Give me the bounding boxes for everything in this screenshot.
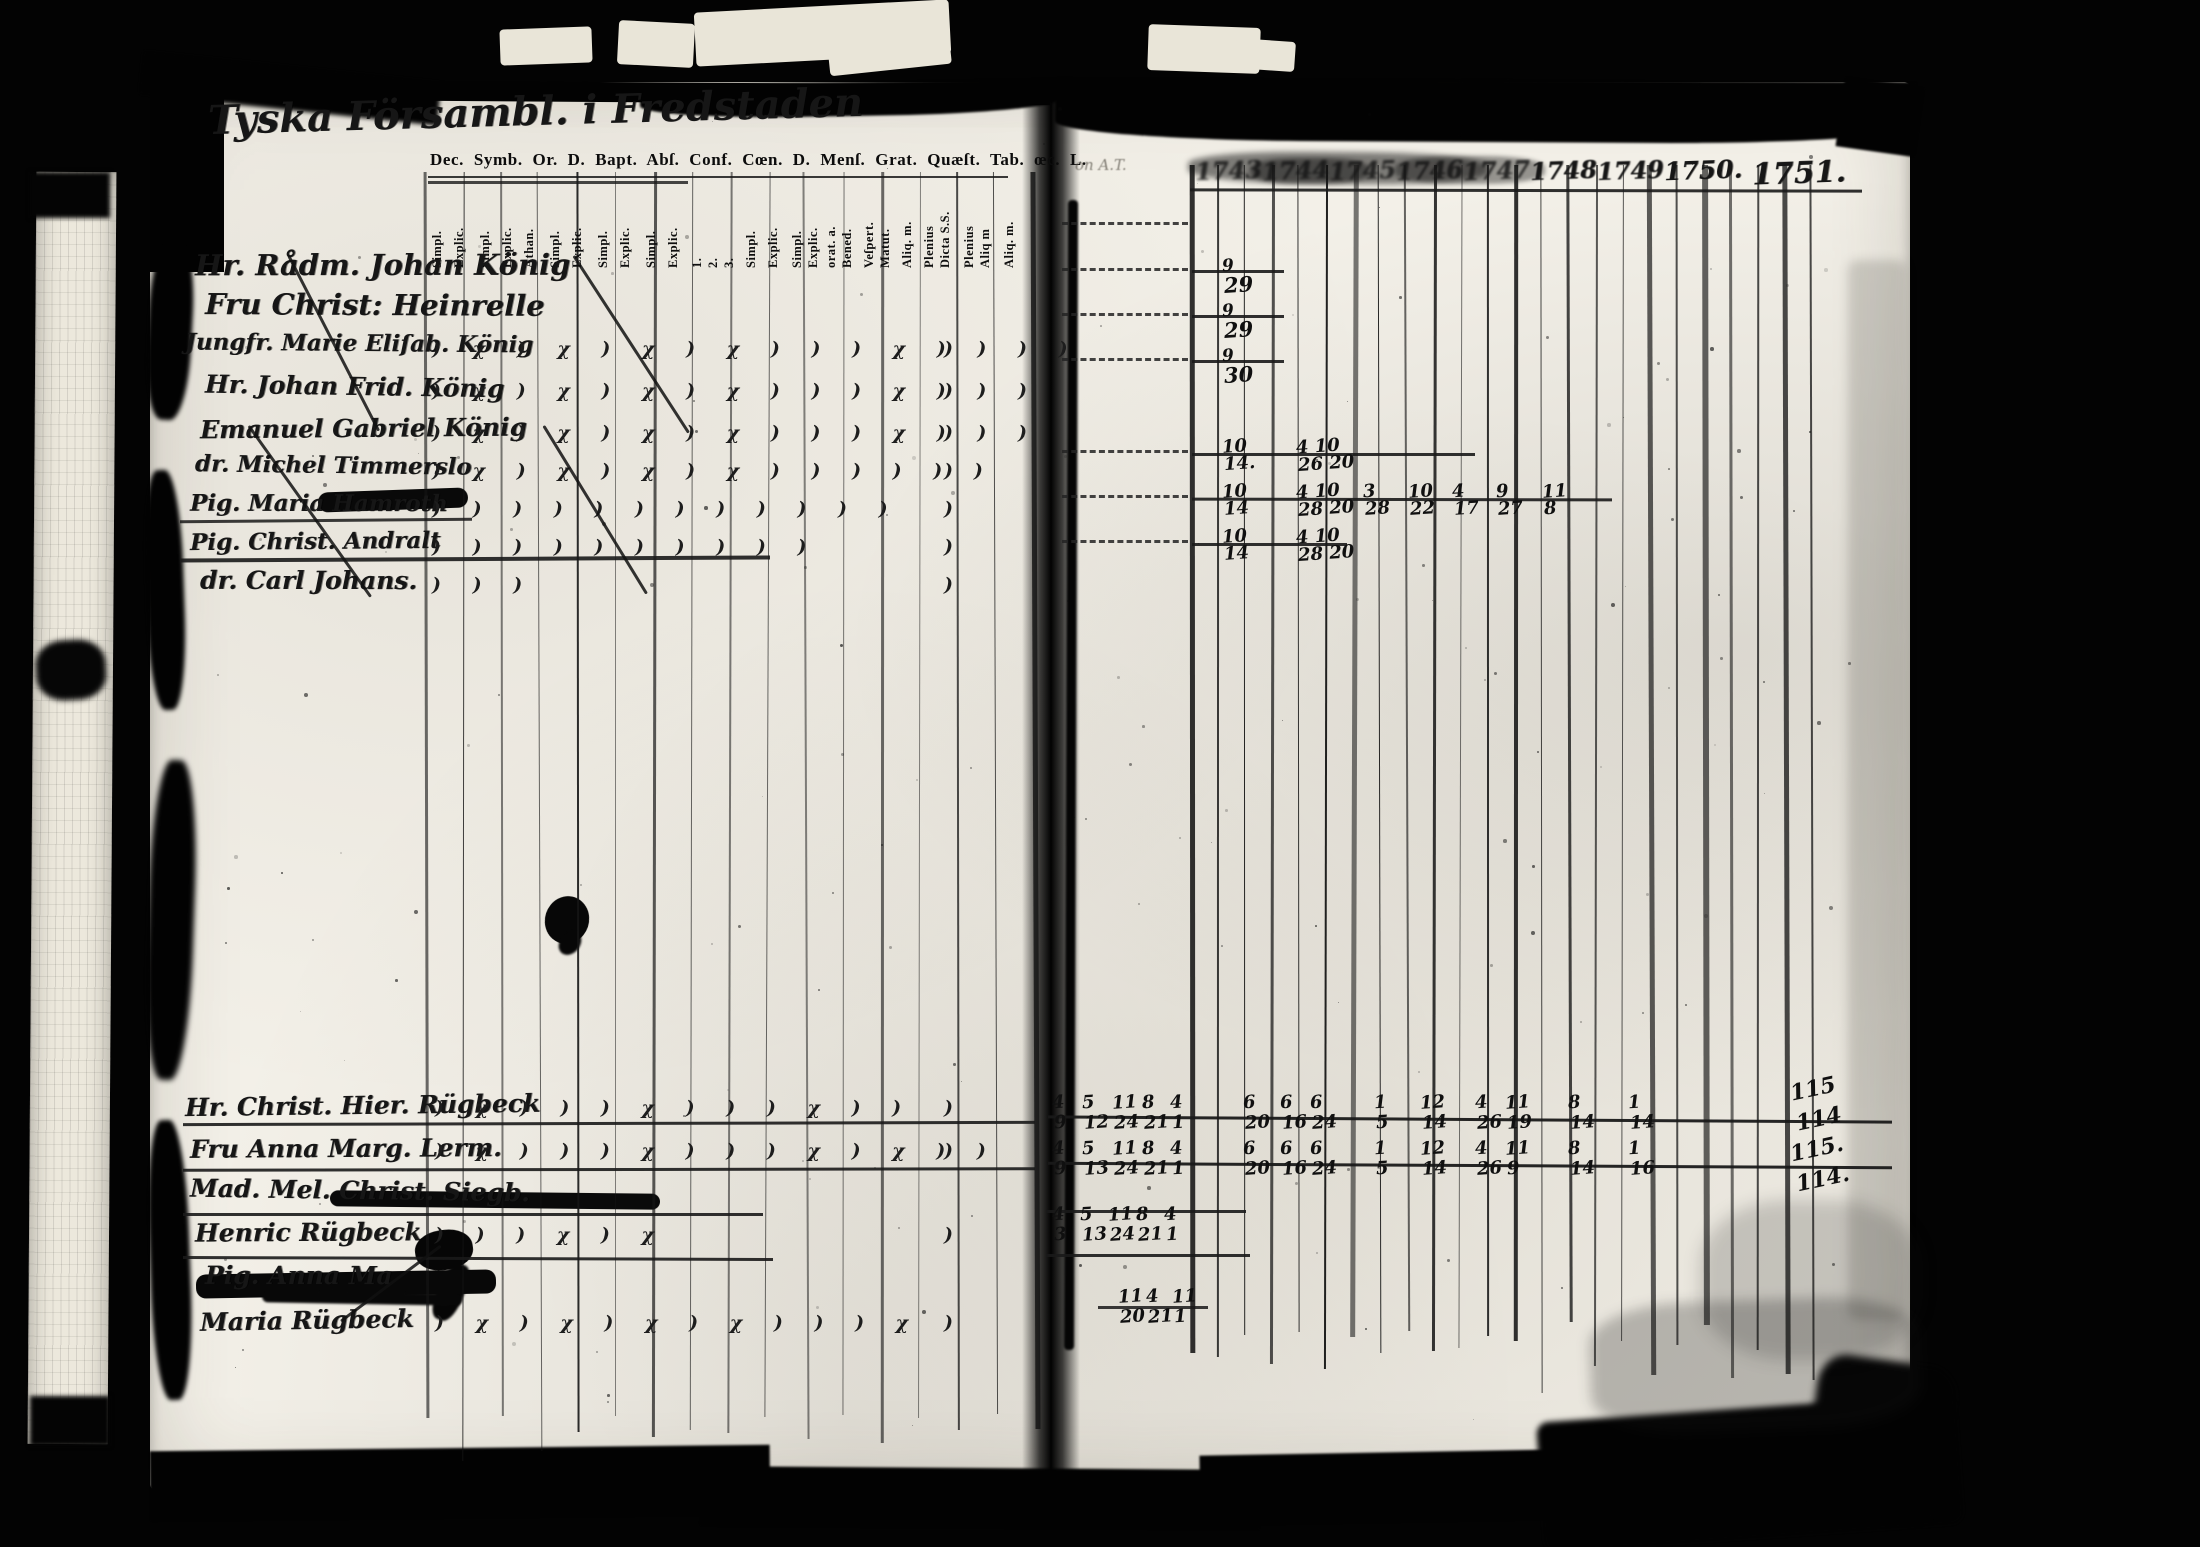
tally-number: 24 bbox=[1109, 1223, 1135, 1246]
column-sublabel: Dicta S.S. bbox=[938, 180, 953, 268]
column-sublabel: Explic. bbox=[618, 180, 633, 268]
tally-number: 12 bbox=[1083, 1111, 1109, 1134]
scan-white-streak bbox=[499, 26, 592, 65]
tally-mark-tail: ) bbox=[944, 1224, 958, 1246]
column-sublabel: Explic. bbox=[806, 180, 821, 268]
tally-number: 8 bbox=[1135, 1204, 1149, 1226]
grid-line bbox=[1190, 165, 1196, 1353]
tally-mark-tail: ) bbox=[944, 536, 958, 558]
tally-number: 4 bbox=[1163, 1204, 1177, 1226]
tally-number: 1 bbox=[1165, 1224, 1179, 1246]
tally-number: 14 bbox=[1223, 497, 1249, 520]
tally-number: 29 bbox=[1223, 271, 1254, 298]
column-sublabel: Aliq. m. bbox=[900, 180, 915, 268]
column-sublabel: Matut. bbox=[878, 180, 893, 268]
column-sublabel: Simpl. bbox=[790, 180, 805, 268]
tally-number: 5 bbox=[1079, 1204, 1093, 1226]
scan-white-streak bbox=[826, 22, 952, 77]
tally-number: 28 20 bbox=[1297, 496, 1355, 521]
tally-number: 26 bbox=[1476, 1111, 1502, 1134]
tally-number: 1 bbox=[1627, 1092, 1641, 1114]
column-sublabel: Simpl. bbox=[644, 180, 659, 268]
tally-number: 8 bbox=[1141, 1092, 1155, 1114]
grid-line bbox=[1217, 165, 1219, 1357]
leader-dashes bbox=[1062, 222, 1188, 225]
tally-number: 1 bbox=[1171, 1112, 1185, 1134]
tally-number: 20 bbox=[1244, 1157, 1270, 1180]
tally-number: 11 bbox=[1504, 1137, 1530, 1160]
tally-number: 20 bbox=[1244, 1111, 1270, 1134]
tally-number: 8 bbox=[1567, 1092, 1581, 1114]
tally-number: 14 bbox=[1569, 1111, 1595, 1134]
tally-number: 11 bbox=[1171, 1285, 1197, 1308]
tally-number: 27 bbox=[1497, 497, 1523, 520]
tally-number: 4 bbox=[1169, 1138, 1183, 1160]
column-sublabel: Simpl. bbox=[596, 180, 611, 268]
tally-mark-tail: ) bbox=[944, 1140, 958, 1162]
tally-number: 13 bbox=[1081, 1223, 1107, 1246]
tally-number: 1 bbox=[1627, 1138, 1641, 1160]
ruling-line bbox=[428, 176, 1008, 178]
tally-marks: ) ) ) ) ) ) ) ) ) ) ) ) bbox=[432, 498, 893, 520]
faint-note: on A.T. bbox=[1075, 156, 1127, 174]
tally-number: 17 bbox=[1453, 497, 1479, 520]
tally-number: 16 bbox=[1629, 1157, 1655, 1180]
tally-number: 4 bbox=[1474, 1092, 1488, 1114]
tally-number: 8 bbox=[1567, 1138, 1581, 1160]
leader-dashes bbox=[1062, 268, 1188, 271]
tally-mark-tail: ) bbox=[944, 1097, 958, 1119]
tally-number: 14 bbox=[1223, 542, 1249, 565]
grid-line bbox=[881, 172, 884, 1443]
tally-number: 6 bbox=[1242, 1138, 1256, 1160]
tally-number: 16 bbox=[1281, 1111, 1307, 1134]
tally-mark-tail: ) bbox=[944, 460, 958, 482]
handwritten-name: Hr. Rådm. Johan König bbox=[195, 248, 570, 283]
scan-white-streak bbox=[617, 20, 695, 68]
tally-marks: ) ) ) χ ) χ bbox=[435, 1224, 659, 1246]
handwritten-name: Mad. Mel. Christ. Siegb. bbox=[190, 1174, 531, 1208]
tally-number: 28 20 bbox=[1297, 541, 1355, 566]
year-label: 1750. bbox=[1664, 155, 1743, 187]
year-label: 1746 bbox=[1396, 155, 1464, 186]
column-sublabel: Plenius bbox=[962, 180, 977, 268]
ruling-line bbox=[1046, 1254, 1250, 1257]
tally-number: 6 bbox=[1309, 1138, 1323, 1160]
tally-number: 26 bbox=[1476, 1157, 1502, 1180]
year-label: 1745 bbox=[1329, 155, 1397, 186]
column-sublabel: Veſpert. bbox=[862, 180, 877, 268]
tally-number: 24 bbox=[1113, 1111, 1139, 1134]
tally-number: 19 bbox=[1506, 1111, 1532, 1134]
year-label: 1748 bbox=[1530, 155, 1598, 186]
tally-number: 9 bbox=[1053, 1158, 1067, 1180]
handwritten-name: Fru Christ: Heinrelle bbox=[205, 287, 545, 323]
tally-mark-tail: ) bbox=[944, 1312, 958, 1334]
tally-mark-tail: ) bbox=[944, 338, 958, 360]
tally-number: 14. bbox=[1223, 452, 1256, 475]
leader-dashes bbox=[1062, 358, 1188, 361]
tally-number: 8 bbox=[1543, 498, 1557, 520]
tally-number: 1 bbox=[1173, 1306, 1187, 1328]
tally-number: 20 bbox=[1119, 1305, 1145, 1328]
scan-white-streak bbox=[694, 0, 951, 67]
tally-marks: ) χ ) ) ) χ ) ) ) χ ) χ ) ) bbox=[435, 1140, 991, 1162]
tally-number: 4 bbox=[1051, 1204, 1065, 1226]
tally-number: 1 bbox=[1171, 1158, 1185, 1180]
tally-number: 13 bbox=[1083, 1157, 1109, 1180]
tally-number: 24 bbox=[1311, 1157, 1337, 1180]
leader-dashes bbox=[1062, 450, 1188, 453]
leader-dashes bbox=[1062, 495, 1188, 498]
year-label: 1749 bbox=[1597, 155, 1665, 186]
tally-number: 5 bbox=[1081, 1138, 1095, 1160]
tally-number: 21 bbox=[1147, 1305, 1173, 1328]
tally-number: 1 bbox=[1373, 1138, 1387, 1160]
tally-number: 8 bbox=[1141, 1138, 1155, 1160]
tally-marks: ) ) ) bbox=[432, 574, 527, 596]
tally-number: 4 bbox=[1474, 1138, 1488, 1160]
tally-number: 3 bbox=[1053, 1224, 1067, 1246]
column-sublabel: orat. a. bbox=[824, 180, 839, 268]
tally-number: 16 bbox=[1281, 1157, 1307, 1180]
column-sublabel: 1. bbox=[690, 180, 705, 268]
tally-number: 29 bbox=[1223, 316, 1254, 343]
tally-number: 21 bbox=[1143, 1157, 1169, 1180]
handwritten-name: dr. Carl Johans. bbox=[200, 566, 417, 595]
tally-number: 6 bbox=[1309, 1092, 1323, 1114]
tally-marks: ) χ ) χ ) χ ) χ ) ) ) χ bbox=[435, 1312, 913, 1334]
year-label: 1743 bbox=[1195, 155, 1263, 186]
scanned-register-canvas: Tyska Försambl. i FredstadenDec. Symb. O… bbox=[0, 0, 2200, 1547]
tally-number: 14 bbox=[1421, 1111, 1447, 1134]
tally-number: 9 bbox=[1053, 1112, 1067, 1134]
tally-number: 28 bbox=[1364, 497, 1390, 520]
adjacent-page-strip bbox=[28, 172, 117, 1445]
handwritten-name: Pig. Anna Ma bbox=[205, 1261, 393, 1290]
tally-number: 26 20 bbox=[1297, 451, 1355, 476]
column-sublabel: Simpl. bbox=[744, 180, 759, 268]
tally-number: 5 bbox=[1375, 1158, 1389, 1180]
tally-number: 5 bbox=[1375, 1112, 1389, 1134]
tally-number: 1 bbox=[1373, 1092, 1387, 1114]
tally-number: 14 bbox=[1569, 1157, 1595, 1180]
tally-mark-tail: ) bbox=[944, 422, 958, 444]
tally-number: 14 bbox=[1421, 1157, 1447, 1180]
tally-mark-tail: ) bbox=[944, 498, 958, 520]
tally-number: 5 bbox=[1081, 1092, 1095, 1114]
tally-mark-tail: ) bbox=[944, 574, 958, 596]
column-sublabel: Plenius bbox=[922, 180, 937, 268]
column-sublabel: Explic. bbox=[666, 180, 681, 268]
tally-number: 9 bbox=[1506, 1158, 1520, 1180]
handwritten-name: Henric Rügbeck bbox=[195, 1217, 422, 1247]
column-sublabel: Bened. bbox=[840, 180, 855, 268]
tally-number: 6 bbox=[1279, 1138, 1293, 1160]
tally-number: 4 bbox=[1051, 1138, 1065, 1160]
column-sublabel: 2. bbox=[706, 180, 721, 268]
year-label: 1751. bbox=[1751, 154, 1846, 192]
year-label: 1747 bbox=[1463, 155, 1531, 186]
tally-number: 21 bbox=[1143, 1111, 1169, 1134]
tally-number: 24 bbox=[1113, 1157, 1139, 1180]
column-sublabel: Explic. bbox=[570, 180, 585, 268]
year-label: 1744 bbox=[1262, 155, 1330, 186]
handwritten-name: Pig. Christ. Andralt bbox=[190, 527, 441, 556]
tally-number: 30 bbox=[1223, 361, 1254, 388]
column-sublabel: Aliq m bbox=[978, 180, 993, 268]
handwritten-name: dr. Michel Timmerslo bbox=[195, 450, 472, 480]
scan-white-streak bbox=[1234, 38, 1296, 72]
tally-mark-tail: ) bbox=[944, 380, 958, 402]
scan-white-streak bbox=[1147, 24, 1261, 74]
tally-number: 4 bbox=[1169, 1092, 1183, 1114]
tally-number: 4 bbox=[1051, 1092, 1065, 1114]
tally-number: 24 bbox=[1311, 1111, 1337, 1134]
leader-dashes bbox=[1062, 540, 1188, 543]
tally-marks: ) χ ) χ ) χ ) χ ) ) ) χ ) ) ) bbox=[432, 422, 1032, 444]
tally-marks: ) χ ) χ ) χ ) χ ) ) ) ) ) ) bbox=[432, 460, 988, 482]
column-sublabel: Aliq. m. bbox=[1002, 180, 1017, 268]
tally-marks: ) χ ) χ ) χ ) χ ) ) ) χ ) ) ) ) bbox=[432, 338, 1073, 360]
handwritten-name: Maria Rügbeck bbox=[200, 1304, 414, 1337]
column-sublabel: Explic. bbox=[766, 180, 781, 268]
column-sublabel: 3. bbox=[722, 180, 737, 268]
tally-number: 6 bbox=[1279, 1092, 1293, 1114]
tally-number: 21 bbox=[1137, 1223, 1163, 1246]
tally-marks: ) χ ) ) ) χ ) ) ) χ ) ) bbox=[435, 1097, 906, 1119]
tally-marks: ) χ ) χ ) χ ) χ ) ) ) χ ) ) ) bbox=[432, 380, 1032, 402]
tally-number: 14 bbox=[1629, 1111, 1655, 1134]
handwritten-name: Pig. Maria Hamroth bbox=[190, 490, 448, 517]
printed-column-header: Dec. Symb. Or. D. Bapt. Abſ. Conf. Cœn. … bbox=[430, 150, 1087, 170]
tally-number: 4 bbox=[1145, 1286, 1159, 1308]
tally-number: 6 bbox=[1242, 1092, 1256, 1114]
leader-dashes bbox=[1062, 313, 1188, 316]
ruling-line bbox=[183, 1213, 763, 1216]
tally-number: 22 bbox=[1409, 497, 1435, 520]
